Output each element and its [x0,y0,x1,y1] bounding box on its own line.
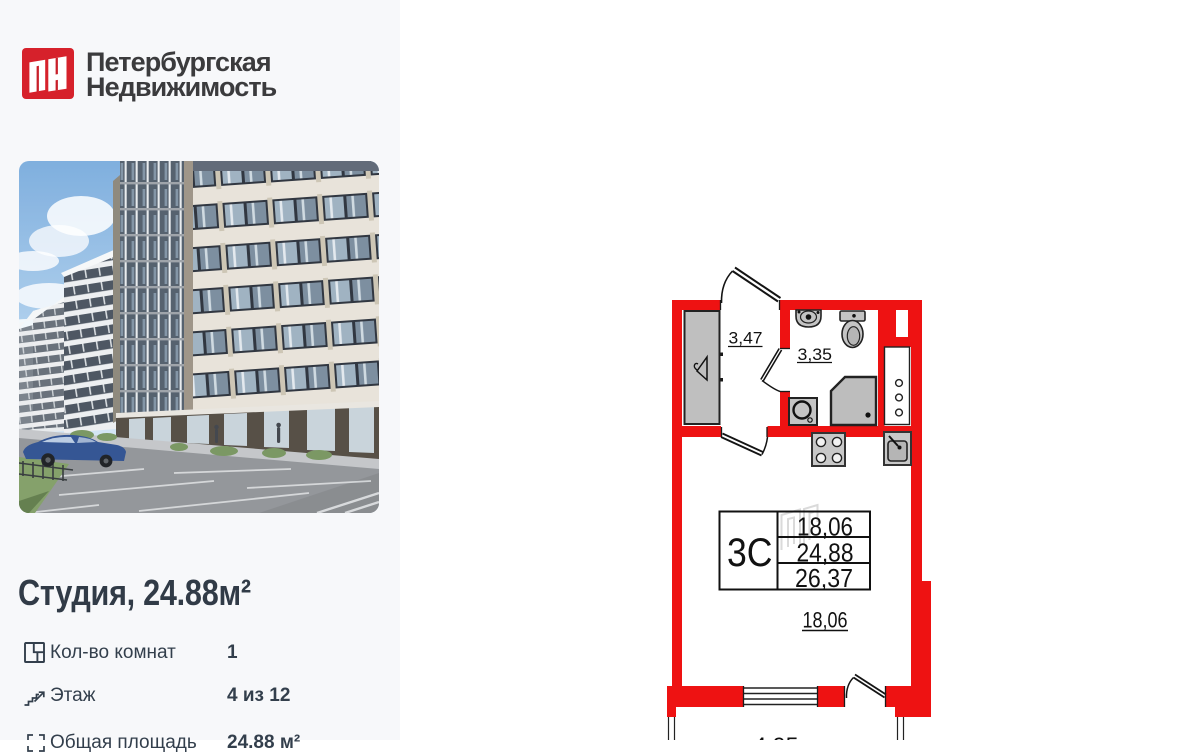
svg-text:4,95: 4,95 [754,733,799,740]
svg-text:18,06: 18,06 [803,608,848,633]
svg-text:3,35: 3,35 [798,346,833,364]
svg-text:3С: 3С [727,531,773,575]
svg-text:26,37: 26,37 [795,563,853,593]
svg-text:3,47: 3,47 [729,330,763,348]
